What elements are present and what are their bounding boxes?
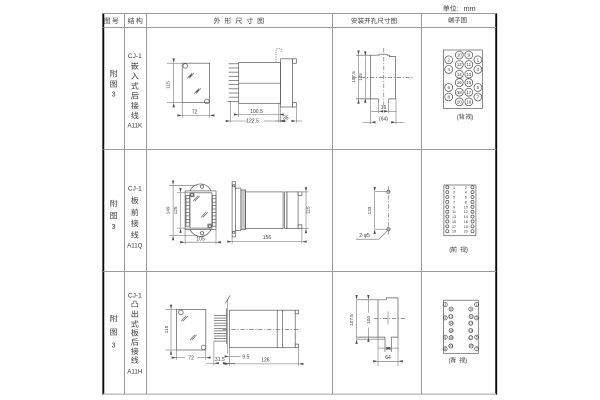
svg-text:10: 10 xyxy=(457,53,462,58)
svg-text:(64): (64) xyxy=(379,116,388,122)
svg-text:16: 16 xyxy=(464,220,468,224)
svg-text:1: 1 xyxy=(476,303,478,307)
svg-text:A11K: A11K xyxy=(127,122,143,129)
svg-text:72: 72 xyxy=(192,109,198,115)
svg-text:10: 10 xyxy=(464,205,468,209)
svg-text:3: 3 xyxy=(112,92,116,99)
svg-text:6: 6 xyxy=(465,196,467,200)
svg-text:16: 16 xyxy=(386,346,392,352)
svg-text:105: 105 xyxy=(196,237,205,243)
svg-text:18: 18 xyxy=(464,225,468,229)
svg-text:(: ( xyxy=(449,358,451,364)
svg-text:12: 12 xyxy=(449,315,453,319)
svg-text:14: 14 xyxy=(464,215,468,219)
svg-text:17: 17 xyxy=(466,90,471,95)
svg-text:122.5: 122.5 xyxy=(246,119,259,125)
svg-text:133: 133 xyxy=(367,206,372,214)
svg-text:126: 126 xyxy=(261,357,270,363)
svg-text:18: 18 xyxy=(457,90,462,95)
svg-text:107.5: 107.5 xyxy=(351,71,356,83)
svg-text:5: 5 xyxy=(453,196,455,200)
svg-text:12: 12 xyxy=(464,210,468,214)
svg-text:20: 20 xyxy=(449,344,453,348)
svg-text:17: 17 xyxy=(469,336,473,340)
svg-text:2-φ5: 2-φ5 xyxy=(359,233,370,239)
svg-text:16: 16 xyxy=(457,80,462,85)
svg-text:115: 115 xyxy=(306,206,312,214)
svg-text:9: 9 xyxy=(453,205,455,209)
svg-text:3: 3 xyxy=(453,191,455,195)
svg-text:7: 7 xyxy=(476,347,478,351)
svg-text:13: 13 xyxy=(466,72,471,77)
svg-text:4: 4 xyxy=(465,191,467,195)
svg-text:14: 14 xyxy=(457,72,462,77)
svg-text:107.5: 107.5 xyxy=(349,314,354,326)
svg-text:19: 19 xyxy=(466,99,471,104)
svg-text:18: 18 xyxy=(449,336,453,340)
svg-text:15: 15 xyxy=(466,80,471,85)
svg-text:72: 72 xyxy=(188,355,194,361)
svg-text:): ) xyxy=(471,115,473,121)
svg-text:3: 3 xyxy=(112,342,116,349)
svg-text:11: 11 xyxy=(469,315,473,319)
svg-text:2: 2 xyxy=(444,303,446,307)
svg-text:7: 7 xyxy=(453,200,455,204)
svg-text:16: 16 xyxy=(381,105,387,111)
svg-text:13: 13 xyxy=(469,321,473,325)
svg-text:2: 2 xyxy=(465,186,467,190)
svg-text:115: 115 xyxy=(165,81,171,89)
svg-text:mm: mm xyxy=(464,4,476,13)
svg-text:19: 19 xyxy=(469,344,473,348)
svg-text:104: 104 xyxy=(366,316,371,324)
svg-text:8: 8 xyxy=(444,347,446,351)
svg-text:(: ( xyxy=(449,248,451,254)
svg-text:4: 4 xyxy=(444,316,446,320)
svg-text:31.5: 31.5 xyxy=(215,357,225,363)
svg-text:13: 13 xyxy=(452,215,456,219)
svg-text:CJ-1: CJ-1 xyxy=(128,186,142,193)
svg-text:17: 17 xyxy=(452,225,456,229)
svg-text:3: 3 xyxy=(112,224,116,231)
svg-text::: : xyxy=(457,6,459,13)
svg-text:125: 125 xyxy=(173,206,179,214)
svg-text:1: 1 xyxy=(453,186,455,190)
svg-text:156: 156 xyxy=(263,235,272,241)
svg-text:(: ( xyxy=(457,115,459,121)
svg-text:35: 35 xyxy=(283,115,289,121)
svg-text:5: 5 xyxy=(476,335,478,339)
svg-text:20: 20 xyxy=(464,230,468,234)
svg-text:A11H: A11H xyxy=(127,368,142,375)
svg-text:11: 11 xyxy=(452,210,456,214)
svg-text:149: 149 xyxy=(166,206,172,214)
svg-text:12: 12 xyxy=(457,62,462,67)
svg-text:16: 16 xyxy=(449,329,453,333)
svg-text:A11Q: A11Q xyxy=(127,242,143,249)
svg-text:15: 15 xyxy=(469,329,473,333)
svg-text:100.5: 100.5 xyxy=(250,109,263,115)
svg-text:115: 115 xyxy=(164,325,170,333)
svg-text:14: 14 xyxy=(449,321,453,325)
svg-text:15: 15 xyxy=(452,220,456,224)
svg-text:CJ-1: CJ-1 xyxy=(128,292,142,299)
svg-text:9: 9 xyxy=(470,307,472,311)
svg-text:): ) xyxy=(465,358,467,364)
svg-text:19: 19 xyxy=(452,230,456,234)
svg-text:11: 11 xyxy=(467,62,472,67)
svg-text:6: 6 xyxy=(444,335,446,339)
svg-text:): ) xyxy=(466,248,468,254)
svg-text:3: 3 xyxy=(476,316,478,320)
svg-text:9.5: 9.5 xyxy=(242,354,249,360)
svg-text:105: 105 xyxy=(358,73,363,81)
svg-text:8: 8 xyxy=(465,200,467,204)
svg-text:10: 10 xyxy=(449,307,453,311)
svg-text:64: 64 xyxy=(385,355,391,361)
svg-text:20: 20 xyxy=(457,99,462,104)
svg-text:CJ-1: CJ-1 xyxy=(128,53,142,60)
